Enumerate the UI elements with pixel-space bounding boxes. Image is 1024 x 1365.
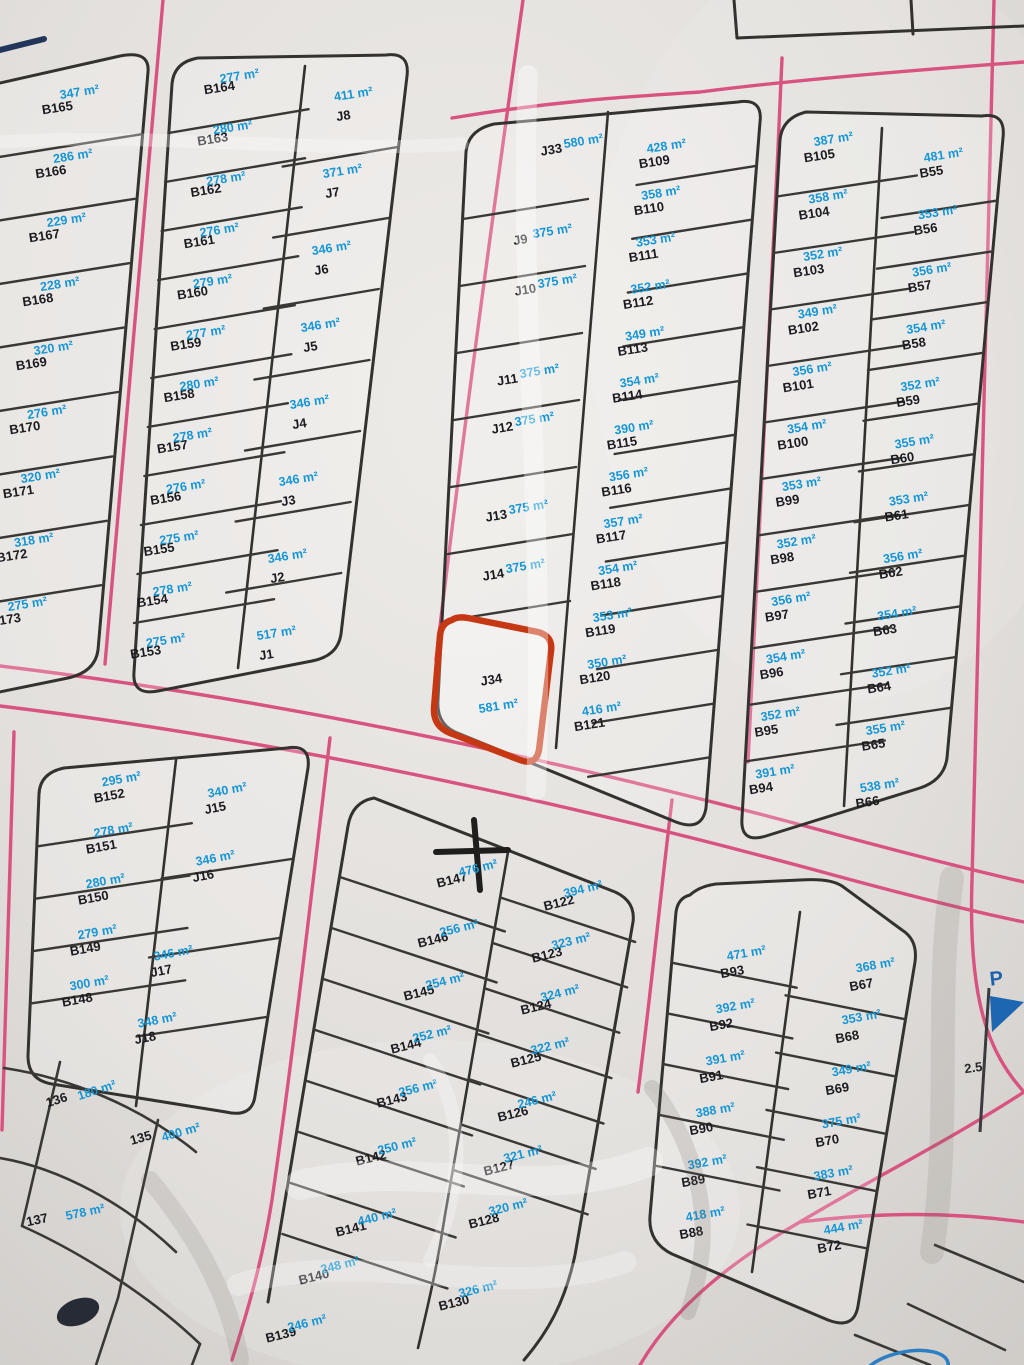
parcel-id: J7 bbox=[324, 184, 341, 201]
parcel-id: J8 bbox=[335, 107, 352, 124]
parcel-id: J1 bbox=[258, 646, 275, 663]
block-central: J33580 m²J9375 m²J10375 m²J11375 m²J1237… bbox=[434, 101, 760, 825]
flag-letter: P bbox=[989, 967, 1005, 990]
parcel-divider bbox=[911, 0, 913, 34]
plat-map-photo: B165347 m²B166286 m²B167229 m²B168228 m²… bbox=[0, 0, 1024, 1365]
measure-label: 2.5 bbox=[963, 1059, 983, 1076]
parcel-id: J6 bbox=[313, 261, 330, 278]
parcel-id: J3 bbox=[280, 492, 297, 509]
parcel-id: J5 bbox=[302, 338, 319, 355]
map-canvas: B165347 m²B166286 m²B167229 m²B168228 m²… bbox=[0, 0, 1024, 1365]
parcel-id: J2 bbox=[269, 569, 286, 586]
